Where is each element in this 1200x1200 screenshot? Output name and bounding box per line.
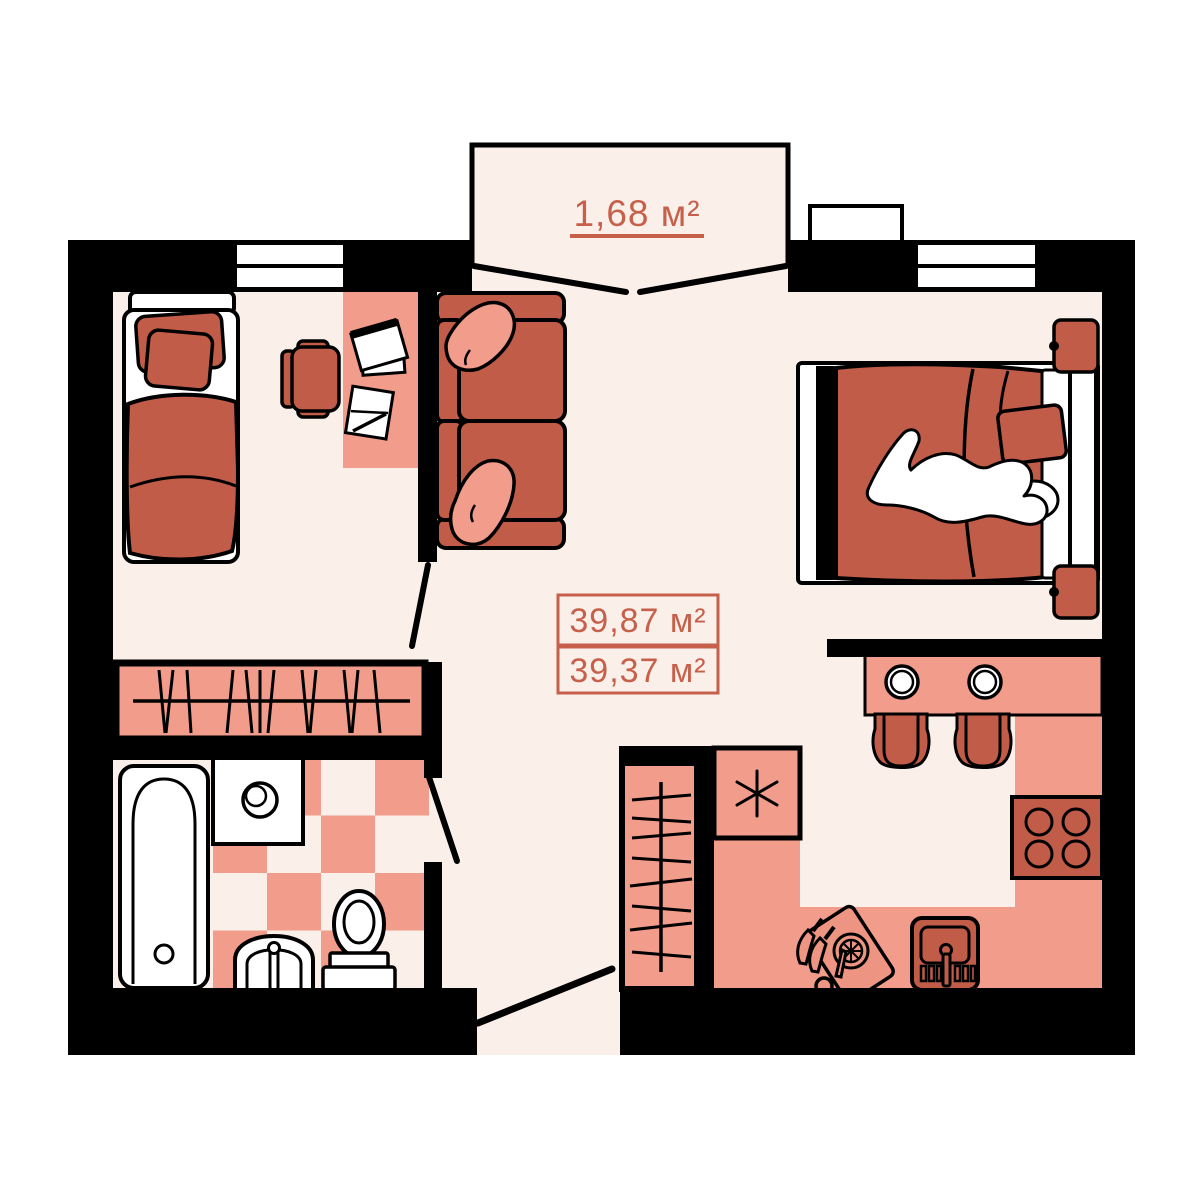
bed-pillow: [997, 404, 1067, 464]
desk: [343, 292, 420, 468]
nightstand: [1049, 320, 1098, 372]
closet-hangers: [622, 763, 697, 989]
dining-chair: [955, 714, 1011, 768]
kitchen-sink: [912, 918, 978, 990]
sofa: [437, 293, 565, 548]
area-total-text: 39,87 м²: [569, 602, 706, 640]
paper-sheet: [345, 386, 393, 439]
dining-table: [865, 655, 1102, 715]
headboard: [1070, 359, 1096, 591]
fridge-snowflake: [714, 748, 800, 838]
stove-burners: [1012, 797, 1102, 878]
desk-chair: [282, 341, 339, 417]
double-bed: [798, 359, 1098, 591]
single-bed: [124, 292, 238, 562]
balcony-area-text: 1,68 м²: [573, 193, 700, 234]
area-living-text: 39,37 м²: [569, 652, 706, 690]
area-summary-boxes: 39,87 м² 39,37 м²: [558, 595, 718, 693]
label-underline: [570, 234, 704, 238]
nightstand: [1049, 566, 1098, 618]
washing-machine: [213, 756, 303, 844]
window: [918, 245, 1035, 287]
bathtub: [120, 766, 208, 988]
wardrobe-hangers: [116, 663, 425, 739]
bed-sheet: [1042, 370, 1072, 578]
balcony-area-label: 1,68 м²: [570, 193, 704, 238]
washbasin: [235, 936, 313, 990]
air-conditioner: [810, 206, 902, 242]
window: [237, 245, 343, 287]
pillow: [145, 329, 214, 390]
dining-chair: [873, 714, 929, 768]
floor-plan: 1,68 м² 39,87 м² 39,37 м²: [0, 0, 1200, 1200]
